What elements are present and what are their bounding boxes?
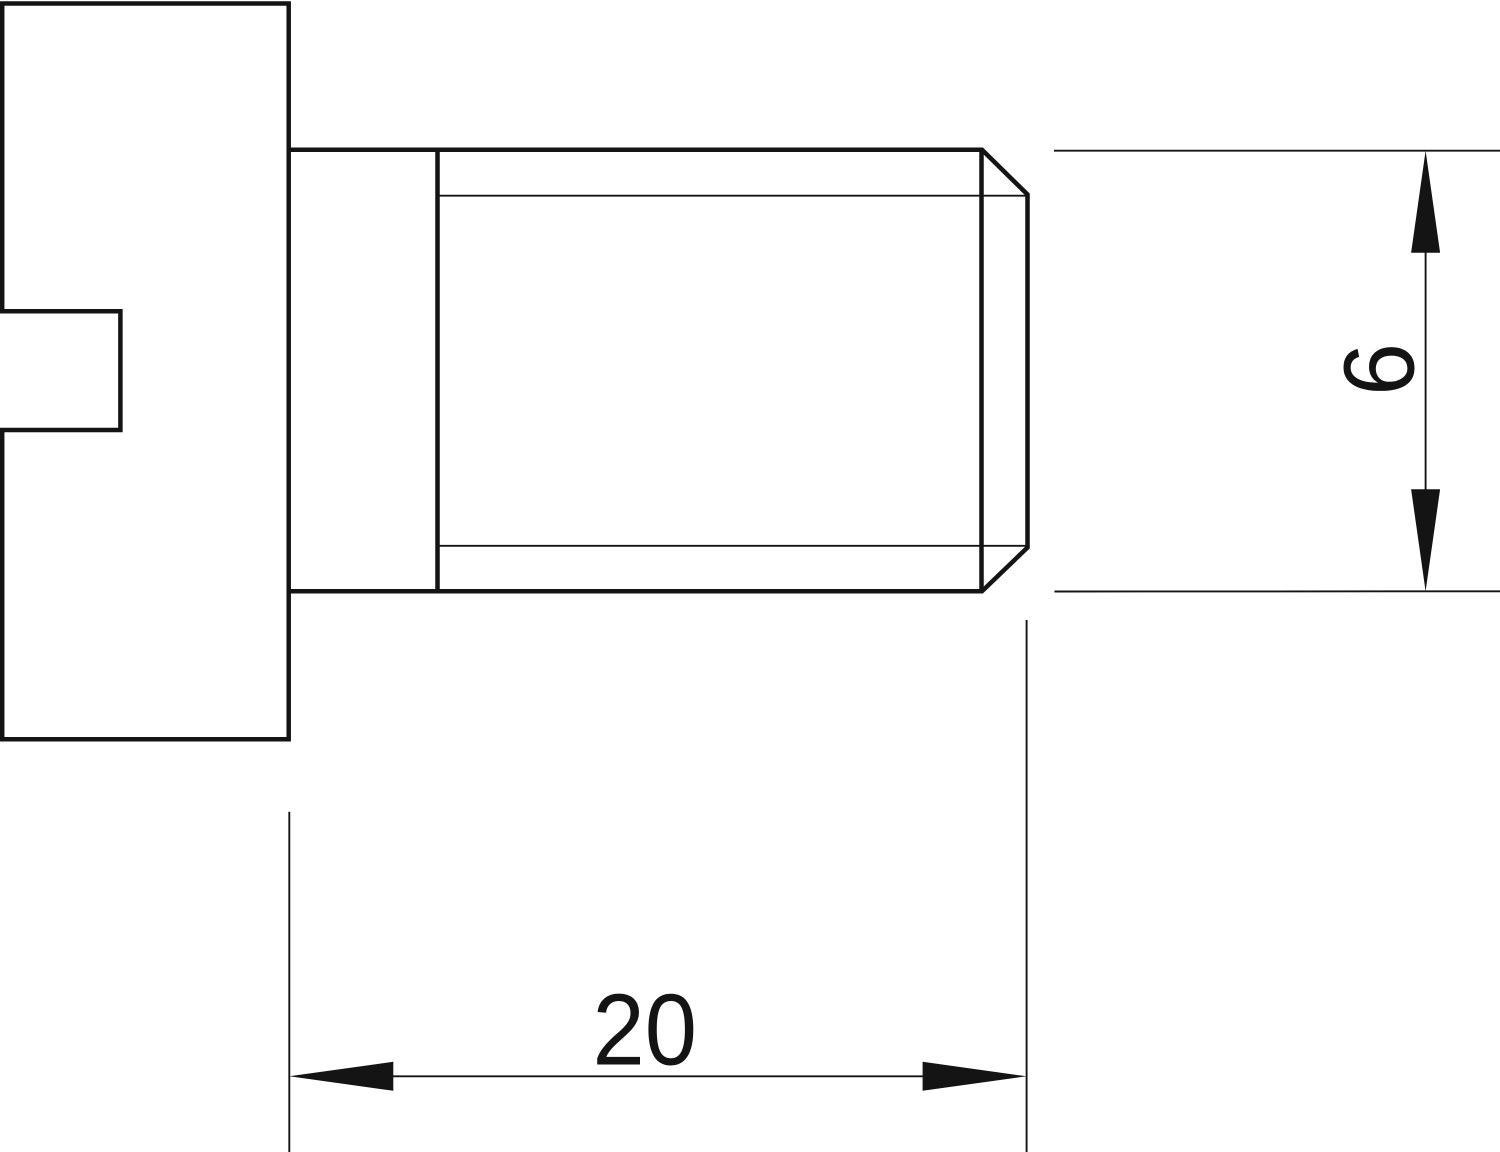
svg-text:20: 20 [592, 973, 696, 1086]
svg-text:6: 6 [1323, 343, 1435, 396]
